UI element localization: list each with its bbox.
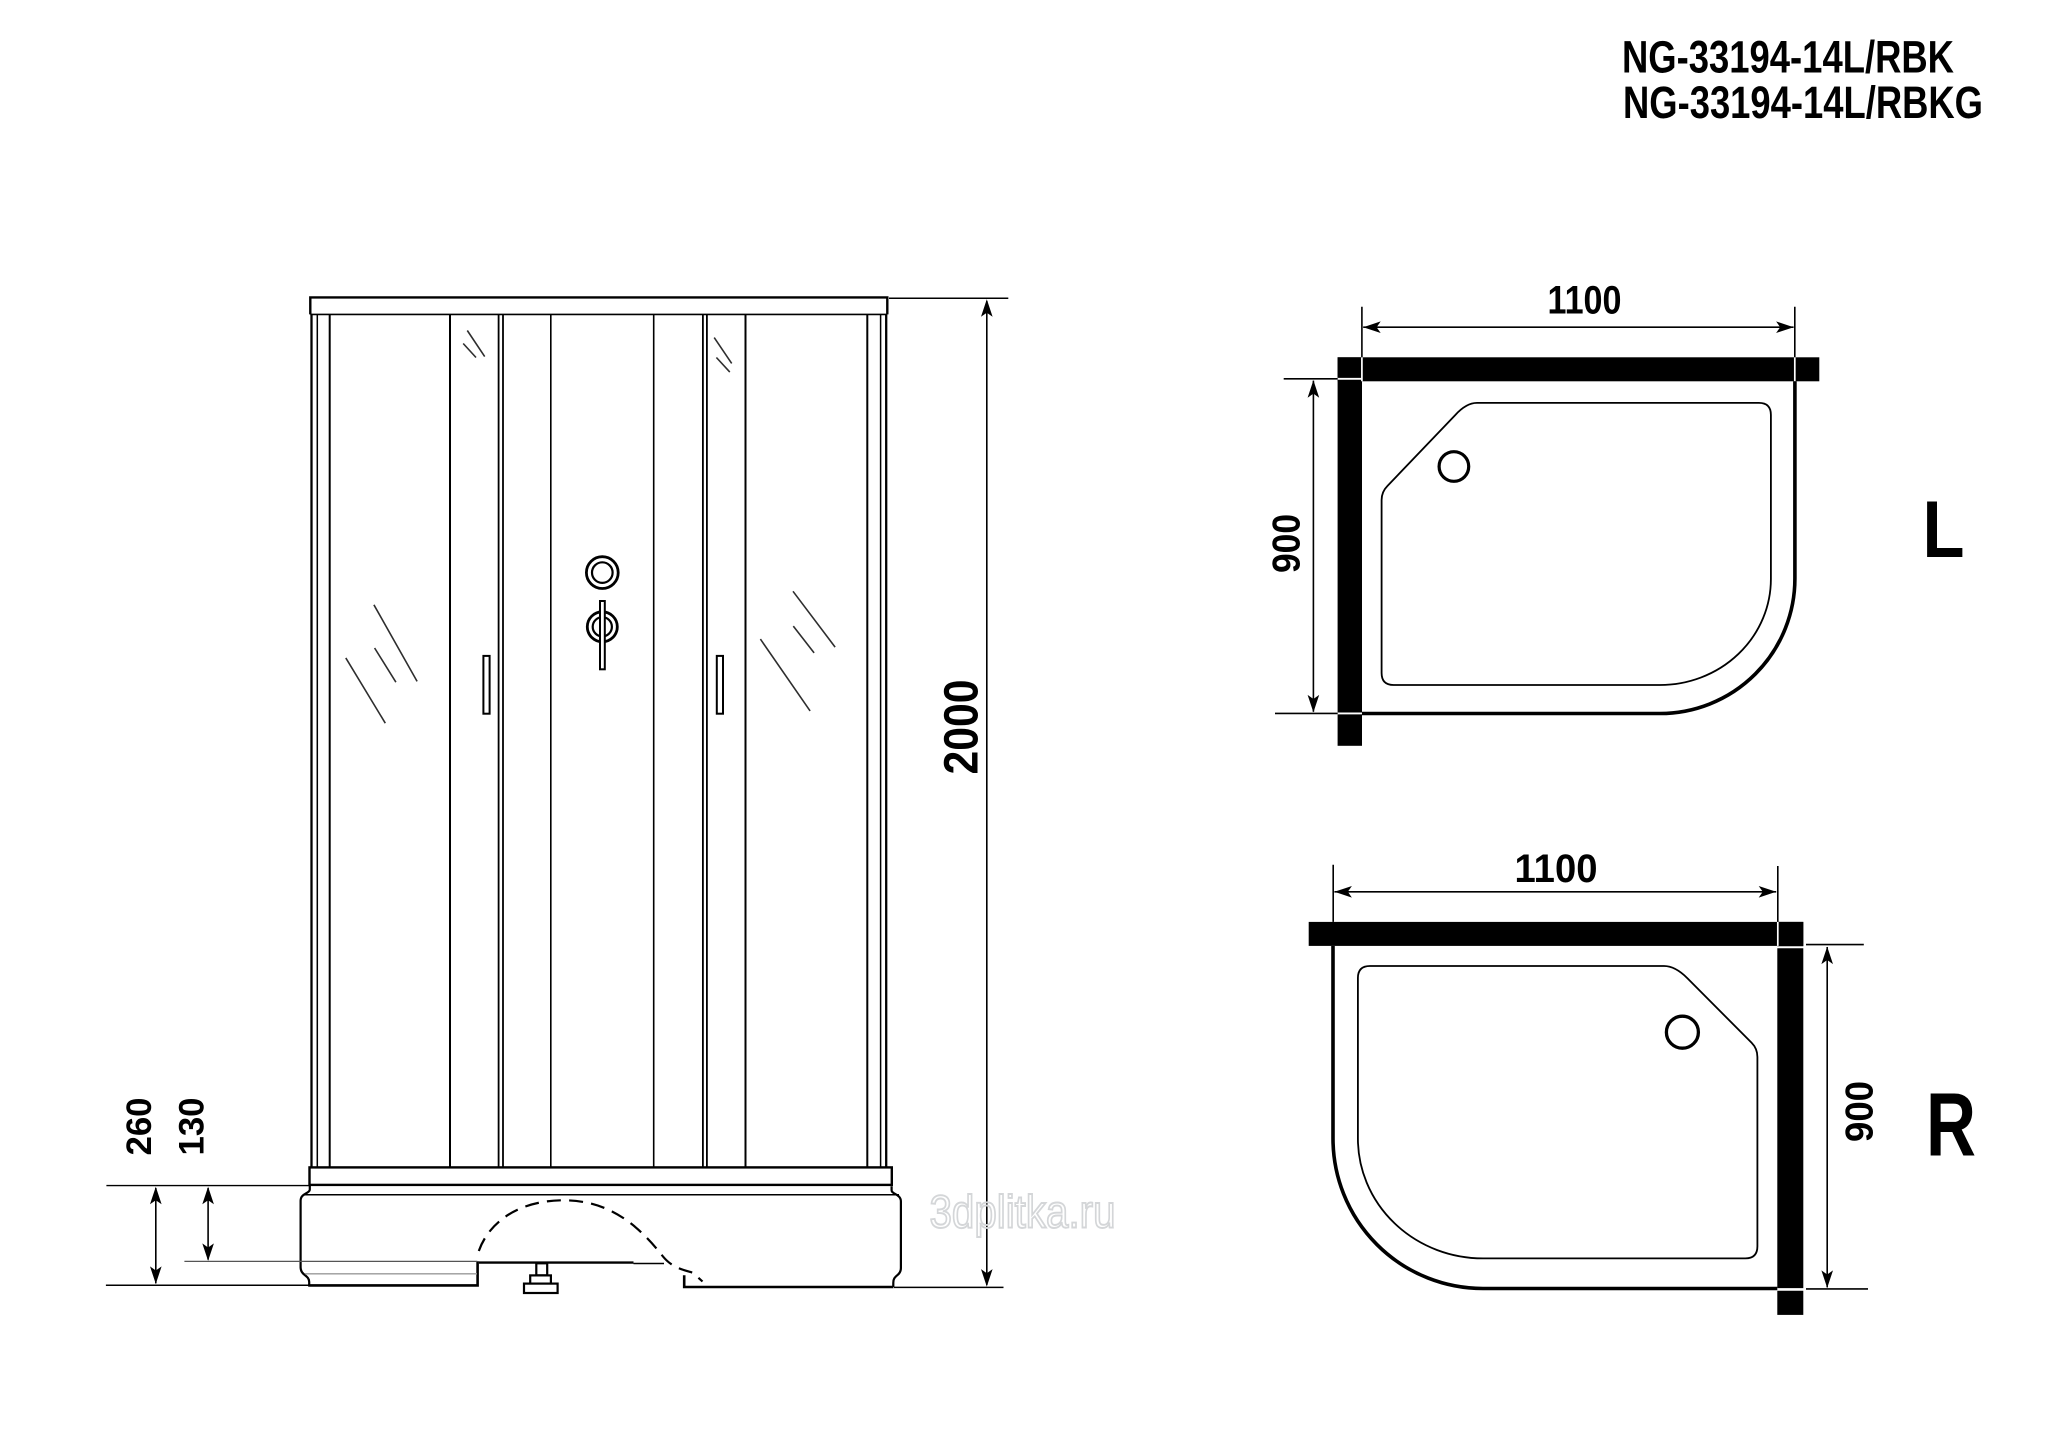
svg-text:900: 900 [1839, 1081, 1882, 1142]
svg-text:NG-33194-14L/RBKG: NG-33194-14L/RBKG [1623, 77, 1983, 128]
svg-text:NG-33194-14L/RBK: NG-33194-14L/RBK [1622, 32, 1954, 83]
svg-text:1100: 1100 [1515, 847, 1598, 891]
svg-text:260: 260 [120, 1098, 159, 1156]
svg-text:900: 900 [1266, 514, 1309, 573]
svg-text:R: R [1926, 1076, 1976, 1176]
svg-text:L: L [1923, 485, 1965, 575]
svg-text:1100: 1100 [1548, 279, 1622, 323]
svg-text:130: 130 [173, 1098, 212, 1156]
svg-text:3dplitka.ru: 3dplitka.ru [930, 1185, 1116, 1237]
svg-text:2000: 2000 [936, 680, 989, 775]
